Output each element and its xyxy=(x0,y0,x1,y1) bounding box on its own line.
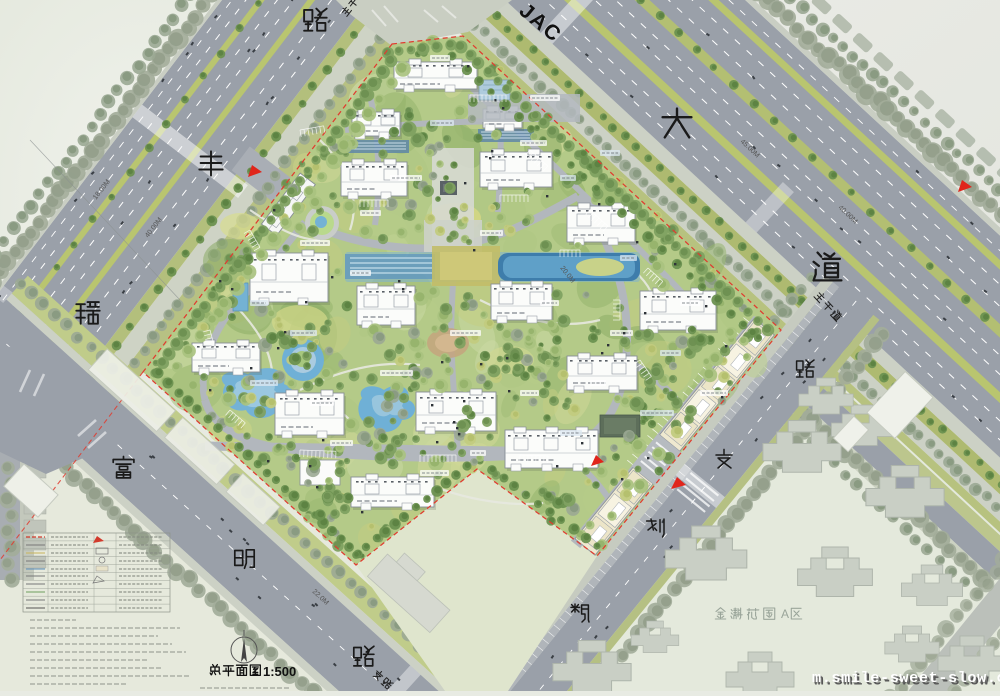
svg-text:A: A xyxy=(781,607,789,621)
svg-text:1:500: 1:500 xyxy=(263,664,296,679)
svg-text:m.smile-sweet-slow.co: m.smile-sweet-slow.co xyxy=(812,669,1000,687)
